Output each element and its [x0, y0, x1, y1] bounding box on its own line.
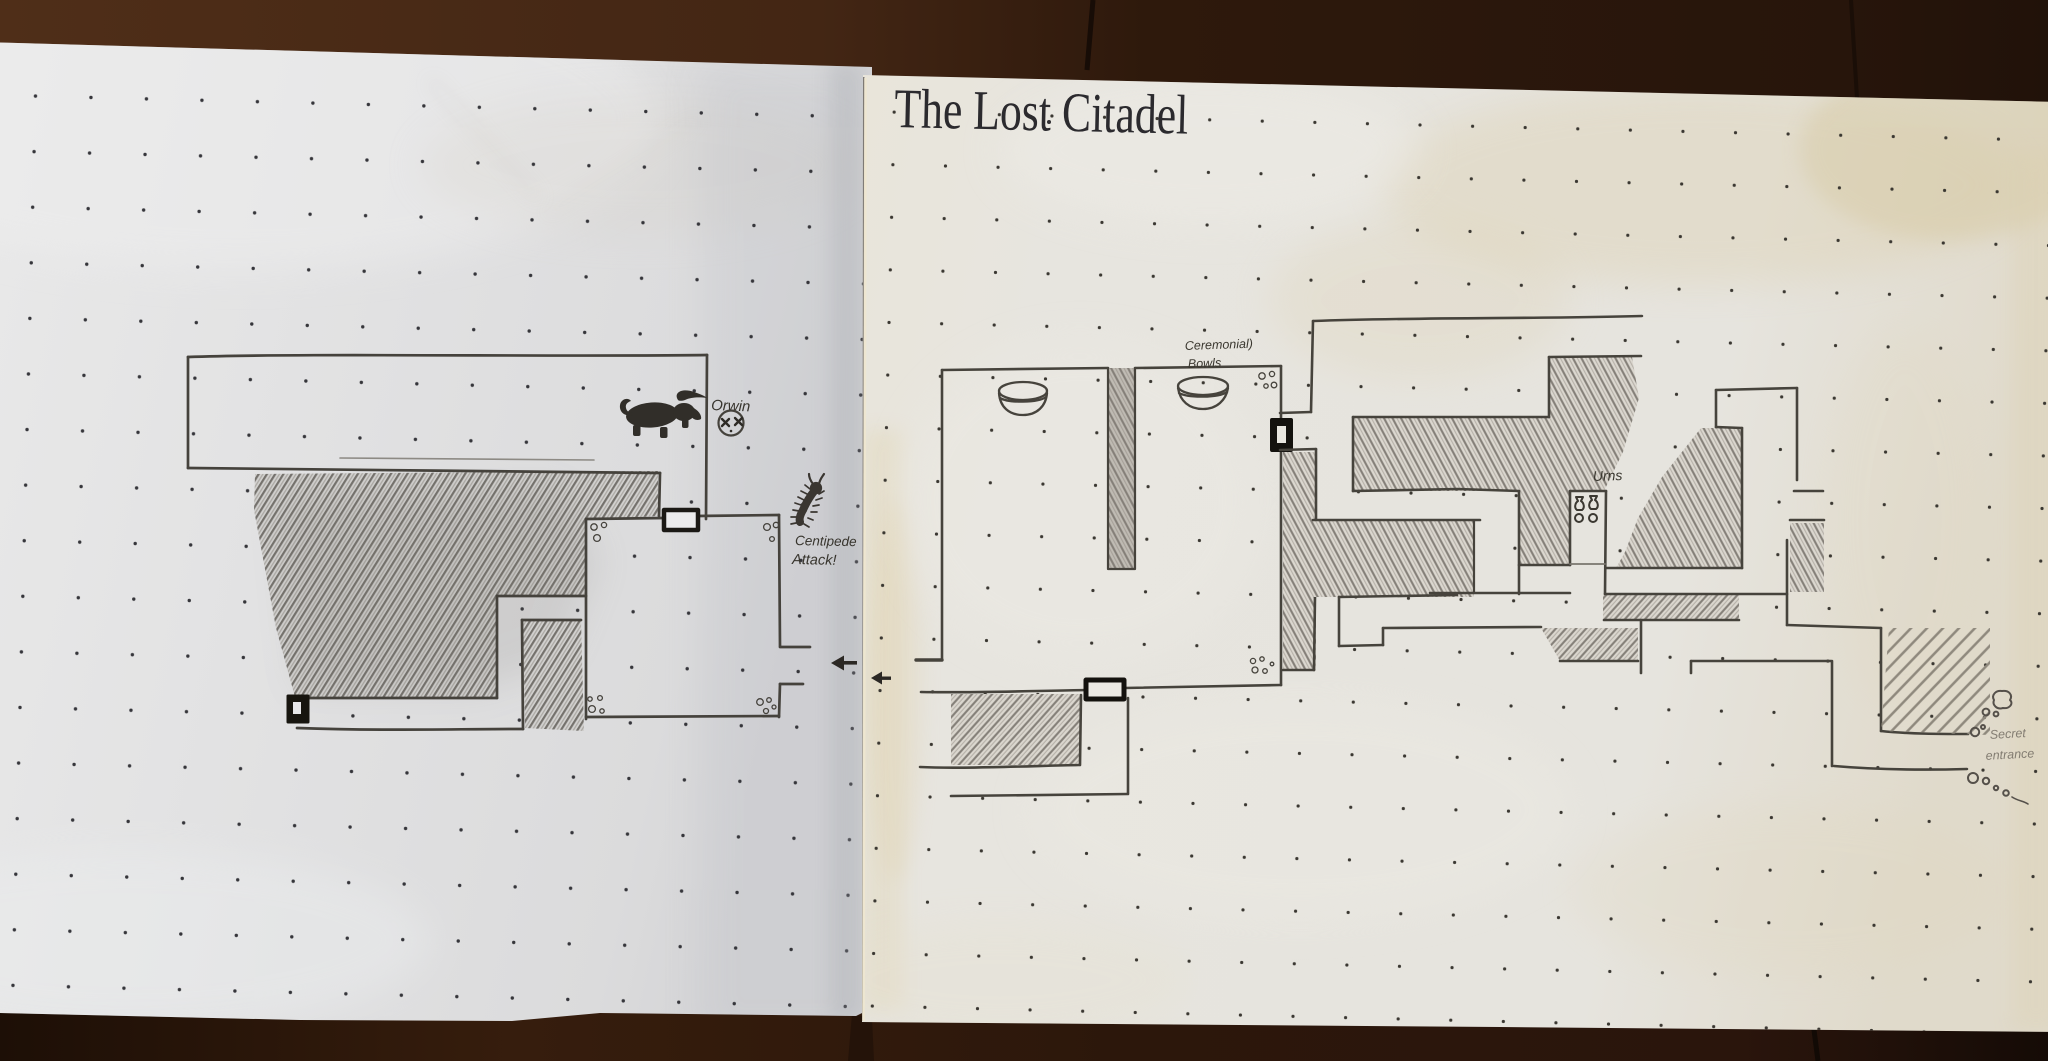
svg-text:Orwin: Orwin	[711, 397, 751, 415]
svg-text:Urns: Urns	[1593, 467, 1623, 484]
svg-text:Centipede: Centipede	[795, 533, 857, 549]
svg-text:The Lost Citadel: The Lost Citadel	[894, 78, 1189, 147]
svg-text:Ceremonial): Ceremonial)	[1185, 337, 1254, 353]
svg-text:Attack!: Attack!	[791, 552, 837, 569]
svg-text:Secret: Secret	[1989, 726, 2026, 742]
svg-text:entrance: entrance	[1985, 746, 2034, 763]
svg-text:Bowls: Bowls	[1188, 356, 1222, 371]
